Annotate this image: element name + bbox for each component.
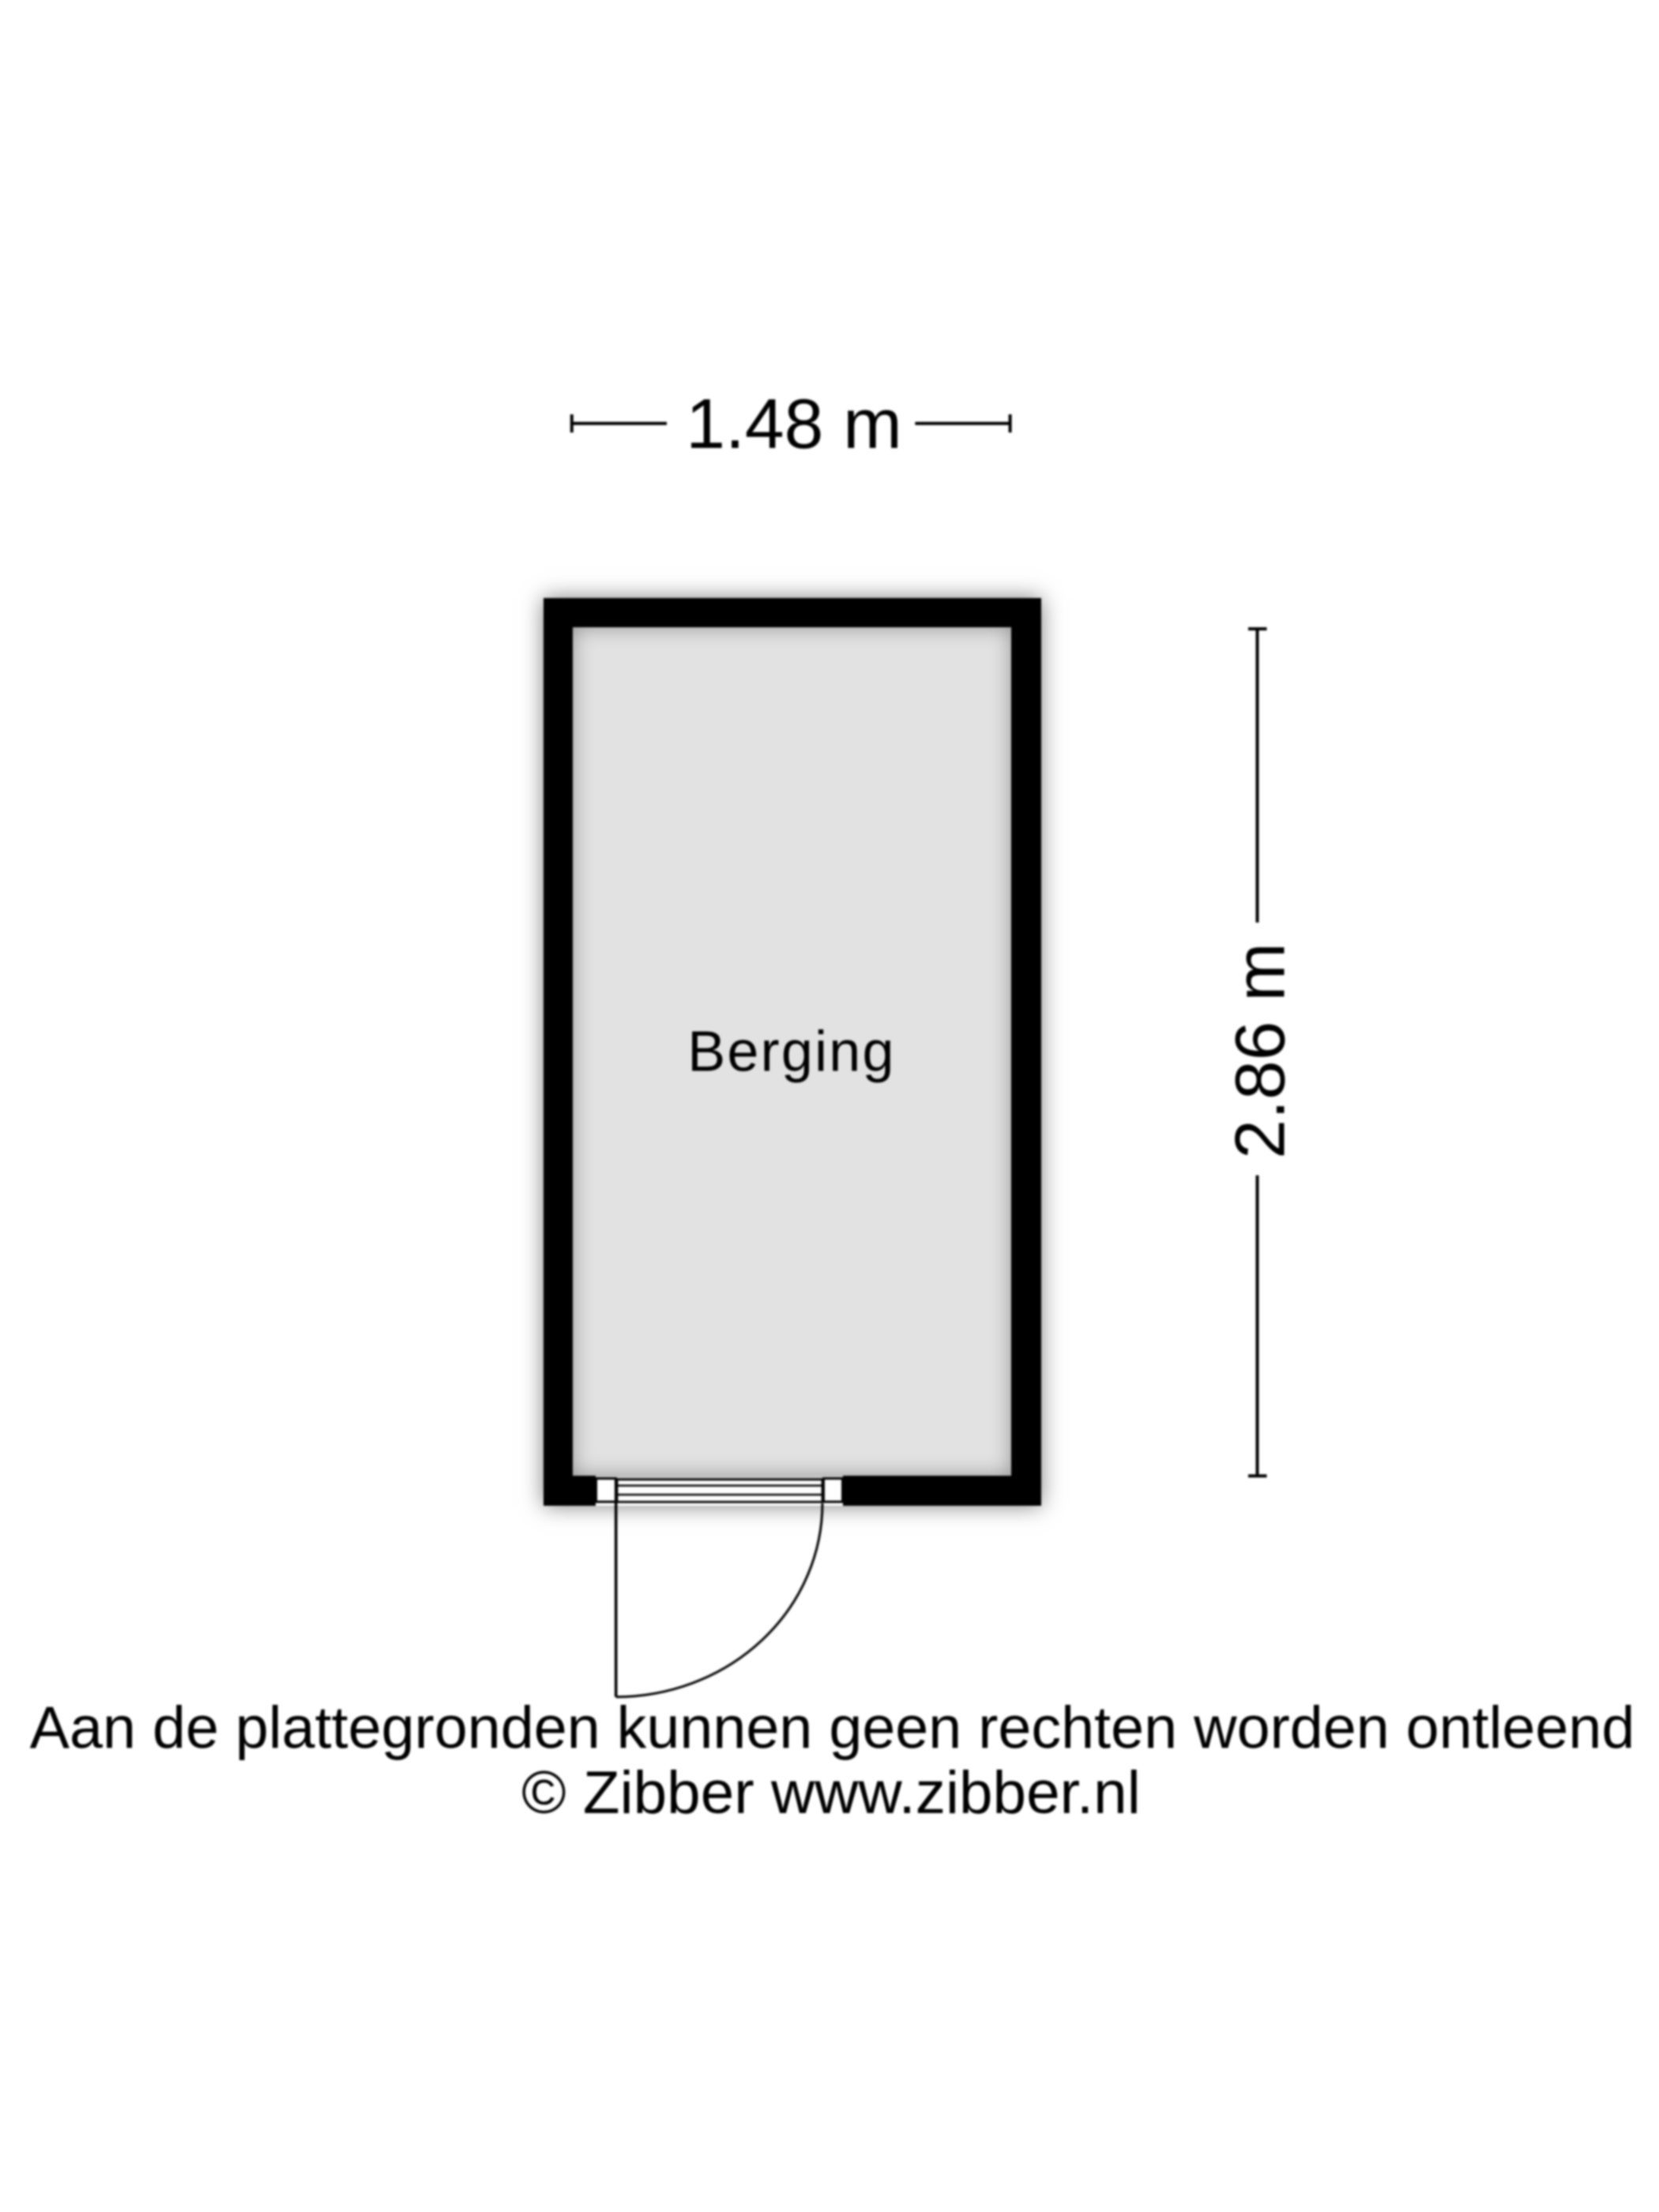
- svg-text:© Zibber www.zibber.nl: © Zibber www.zibber.nl: [521, 1759, 1140, 1826]
- svg-text:Aan de plattegronden kunnen ge: Aan de plattegronden kunnen geen rechten…: [30, 1695, 1635, 1761]
- svg-text:Berging: Berging: [687, 1021, 896, 1084]
- svg-text:1.48 m: 1.48 m: [686, 384, 902, 463]
- svg-text:2.86 m: 2.86 m: [1221, 942, 1300, 1159]
